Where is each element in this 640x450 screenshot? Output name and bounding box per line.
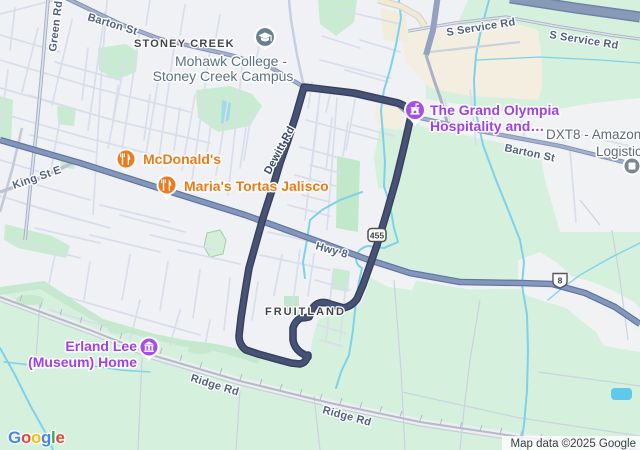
svg-text:o: o bbox=[21, 428, 31, 447]
svg-text:Maria's Tortas Jalisco: Maria's Tortas Jalisco bbox=[184, 178, 329, 194]
svg-text:McDonald's: McDonald's bbox=[143, 151, 221, 167]
svg-text:g: g bbox=[41, 428, 51, 447]
svg-text:8: 8 bbox=[558, 276, 563, 286]
svg-text:Hospitality and…: Hospitality and… bbox=[430, 118, 544, 134]
svg-text:Erland Lee: Erland Lee bbox=[65, 338, 137, 354]
svg-text:Stoney Creek Campus: Stoney Creek Campus bbox=[153, 68, 294, 84]
svg-text:The Grand Olympia: The Grand Olympia bbox=[430, 102, 559, 118]
svg-text:e: e bbox=[56, 428, 65, 447]
svg-text:STONEY CREEK: STONEY CREEK bbox=[134, 38, 235, 50]
svg-text:o: o bbox=[31, 428, 41, 447]
svg-text:455: 455 bbox=[370, 231, 384, 241]
svg-text:Mohawk College -: Mohawk College - bbox=[175, 53, 287, 69]
svg-text:Map data ©2025 Google: Map data ©2025 Google bbox=[511, 438, 636, 450]
svg-text:FRUITLAND: FRUITLAND bbox=[265, 306, 346, 318]
svg-text:(Museum) Home: (Museum) Home bbox=[28, 354, 137, 370]
svg-text:DXT8 - Amazon: DXT8 - Amazon bbox=[546, 127, 640, 142]
svg-text:G: G bbox=[8, 428, 21, 447]
